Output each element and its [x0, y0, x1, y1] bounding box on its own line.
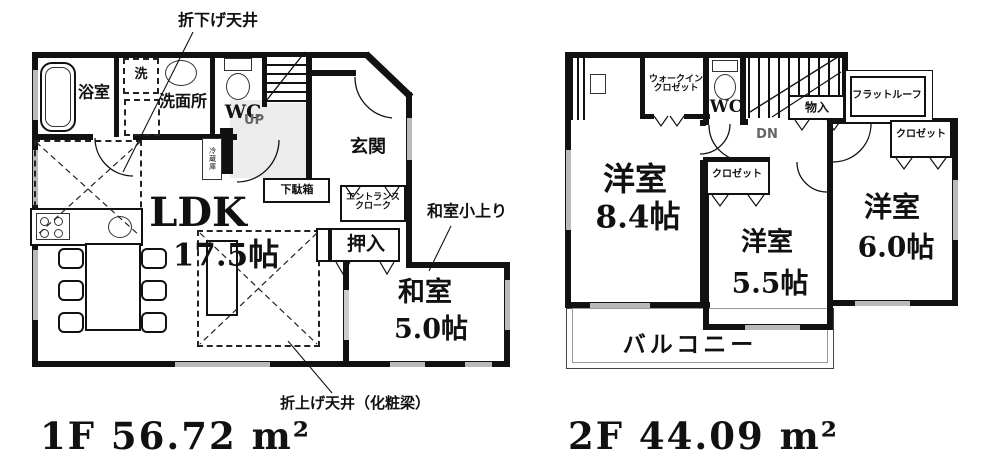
tokonoma-niche [316, 228, 330, 262]
room84-door-arc [700, 124, 730, 154]
fridge-label: 冷蔵庫 [208, 147, 215, 171]
chair [58, 312, 84, 333]
monoire-label: 物入 [805, 102, 829, 115]
wall [640, 57, 645, 119]
room-label-ldk: LDK [149, 192, 247, 234]
floor-2-area: 2F 44.09 m² [568, 414, 839, 458]
burner [54, 229, 63, 238]
wall [406, 262, 510, 268]
room55-door-arc [797, 162, 827, 192]
chair [141, 248, 167, 269]
wall [740, 119, 748, 125]
wic-line2: クロゼット [649, 85, 703, 94]
wic-door-symbol [654, 116, 684, 126]
balcony-label: バルコニー [623, 333, 758, 357]
chair [141, 280, 167, 301]
burner [40, 217, 49, 226]
getabako-label: 下駄箱 [281, 184, 314, 196]
window [407, 118, 412, 160]
window [465, 362, 492, 367]
room-label-yoshitsu-55: 洋室 [741, 229, 793, 256]
room-label-genkan: 玄関 [350, 139, 386, 158]
window [745, 325, 800, 330]
wc2-door-arc [709, 125, 745, 161]
leader-raised-ceiling [288, 341, 332, 393]
wall [114, 55, 119, 137]
window [855, 301, 910, 306]
wall [32, 52, 368, 58]
chair [58, 280, 84, 301]
room-label-yoshitsu-60: 洋室 [864, 192, 920, 221]
entrance-cloak-line2: クローク [346, 203, 400, 212]
window [33, 250, 38, 320]
window [505, 280, 510, 330]
floor-1-area: 1F 56.72 m² [40, 414, 311, 458]
flat-roof-label: フラットルーフ [852, 91, 921, 102]
dn-label: DN [756, 128, 778, 142]
room-label-bath: 浴室 [78, 85, 110, 102]
room-label-yoshitsu-55-size: 5.5帖 [732, 268, 809, 297]
room-label-washroom: 洗面所 [159, 94, 207, 111]
washroom-storage [124, 99, 160, 136]
washbasin [165, 60, 197, 86]
wall [312, 70, 356, 76]
room60-door-arc [833, 124, 871, 162]
window [953, 180, 958, 240]
toilet-tank [224, 58, 252, 71]
wall-hatch [571, 58, 589, 120]
chair [141, 312, 167, 333]
room-label-yoshitsu-60-size: 6.0帖 [858, 232, 935, 261]
up-label: UP [244, 114, 264, 128]
stairs-1f [267, 55, 306, 103]
toilet-bowl [226, 73, 250, 100]
room-label-washitsu-size: 5.0帖 [394, 316, 468, 344]
closet-60-label: クロゼット [896, 130, 946, 141]
room-label-ldk-size: 17.5帖 [173, 240, 280, 273]
annotation-dropped-ceiling: 折下げ天井 [178, 13, 258, 30]
burner [40, 229, 49, 238]
annotation-raised-ceiling: 折上げ天井（化粧梁） [280, 396, 430, 412]
wall [210, 55, 215, 137]
front-door-arc [355, 77, 392, 118]
window [566, 150, 571, 230]
toilet-tank [712, 60, 738, 72]
wall [827, 118, 833, 330]
dining-table [85, 243, 141, 331]
room-label-yoshitsu-84: 洋室 [603, 163, 667, 197]
sliding-door [344, 290, 349, 340]
window [590, 303, 650, 308]
burner [54, 217, 63, 226]
room-label-washitsu: 和室 [398, 279, 452, 307]
wall [703, 52, 709, 125]
closet60-door-symbol [896, 158, 946, 169]
window [33, 70, 38, 120]
kitchen-sink [108, 216, 132, 238]
room-label-wc-2f: WC [710, 99, 743, 117]
annotation-koagari: 和室小上り [427, 204, 507, 221]
window [390, 362, 425, 367]
room-label-yoshitsu-84-size: 8.4帖 [596, 202, 681, 235]
closet55-door-symbol [712, 195, 764, 206]
column [590, 74, 606, 94]
chair [58, 248, 84, 269]
room-label-oshiire: 押入 [347, 235, 385, 255]
window [175, 362, 270, 367]
bathtub-inner [45, 67, 71, 127]
entrance-cloak-label: エントランス クローク [346, 194, 400, 213]
wic-label: ウォークイン クロゼット [649, 76, 703, 95]
washer-label: 洗 [134, 68, 147, 82]
floor-plan: 折下げ天井 浴室 洗 洗面所 WC UP 玄関 下駄箱 エントランス クローク … [0, 0, 1000, 463]
wall [640, 114, 654, 119]
diagonal-wall [366, 54, 411, 97]
closet-55-label: クロゼット [712, 170, 762, 181]
wall [32, 361, 510, 367]
